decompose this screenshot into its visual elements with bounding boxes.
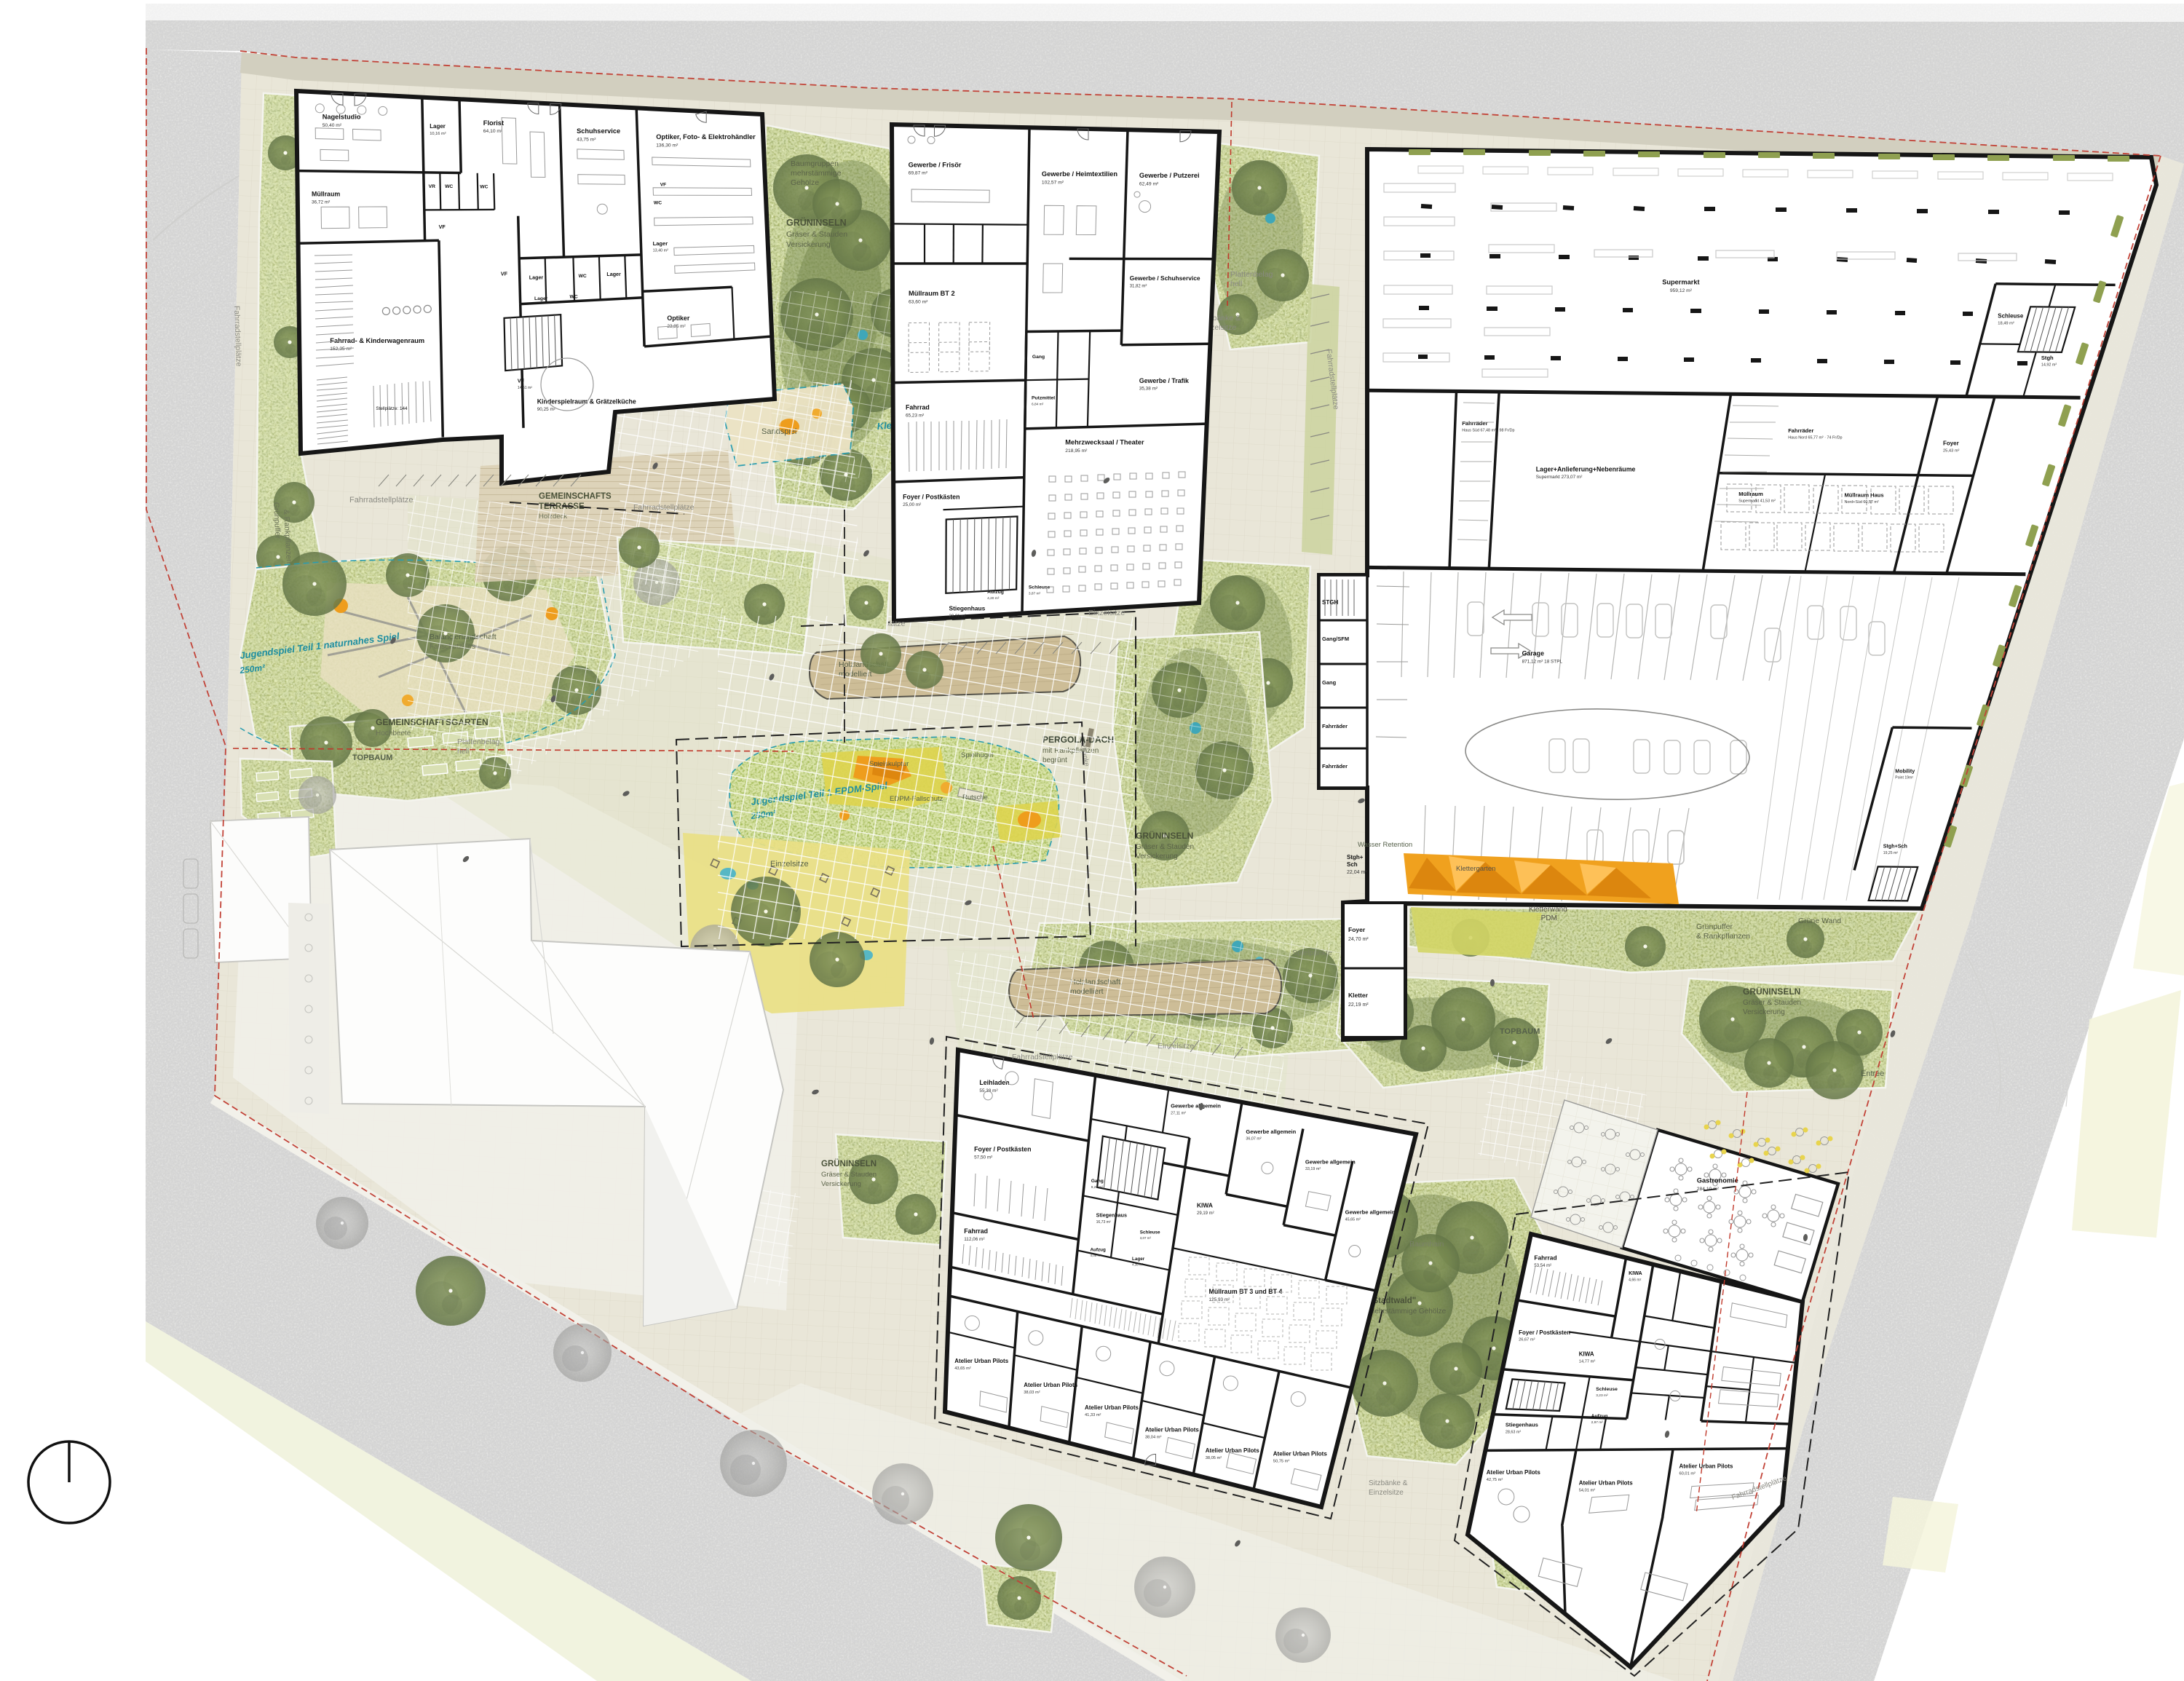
svg-text:Kletterwand: Kletterwand bbox=[1529, 906, 1567, 914]
svg-text:45,65 m²: 45,65 m² bbox=[1345, 1217, 1361, 1222]
svg-text:Fahrrad: Fahrrad bbox=[906, 404, 930, 411]
svg-text:31,82 m²: 31,82 m² bbox=[1130, 285, 1147, 289]
svg-text:VF: VF bbox=[439, 224, 446, 230]
svg-text:GRÜNINSELN: GRÜNINSELN bbox=[786, 217, 847, 228]
svg-text:VR: VR bbox=[429, 184, 435, 189]
svg-text:Fahrradstellplätze: Fahrradstellplätze bbox=[1012, 1053, 1073, 1061]
svg-text:871,12 m² 18 STPL: 871,12 m² 18 STPL bbox=[1522, 660, 1563, 665]
svg-text:112,06 m²: 112,06 m² bbox=[964, 1237, 984, 1242]
svg-text:102,57 m²: 102,57 m² bbox=[1042, 180, 1064, 185]
svg-text:Fahrräder: Fahrräder bbox=[1462, 420, 1487, 427]
svg-text:Atelier Urban Pilots: Atelier Urban Pilots bbox=[1085, 1404, 1139, 1411]
svg-text:42,75 m²: 42,75 m² bbox=[1487, 1478, 1503, 1482]
svg-text:50,75 m²: 50,75 m² bbox=[1273, 1459, 1290, 1463]
svg-text:Fahrrad: Fahrrad bbox=[964, 1227, 988, 1235]
svg-text:Stgh+: Stgh+ bbox=[1347, 854, 1364, 861]
svg-text:Gang: Gang bbox=[1322, 679, 1337, 686]
svg-text:36,72 m²: 36,72 m² bbox=[312, 199, 330, 205]
svg-text:36,07 m²: 36,07 m² bbox=[1246, 1136, 1261, 1141]
svg-text:Grüne Wand: Grüne Wand bbox=[1798, 917, 1841, 925]
svg-text:Schleuse: Schleuse bbox=[1596, 1387, 1618, 1392]
svg-text:14,77 m²: 14,77 m² bbox=[1579, 1360, 1596, 1364]
svg-text:50,40 m²: 50,40 m² bbox=[323, 123, 342, 128]
svg-text:54,01 m²: 54,01 m² bbox=[1579, 1488, 1596, 1492]
svg-text:64,10 m²: 64,10 m² bbox=[483, 129, 503, 134]
svg-text:WC: WC bbox=[445, 184, 453, 189]
svg-text:Schuhservice: Schuhservice bbox=[577, 127, 620, 135]
svg-text:25,43 m²: 25,43 m² bbox=[1943, 449, 1960, 454]
svg-text:Einzelsitze: Einzelsitze bbox=[1088, 609, 1125, 617]
svg-text:Foyer: Foyer bbox=[1943, 440, 1959, 447]
svg-text:Optiker: Optiker bbox=[667, 315, 689, 322]
svg-text:Stgh+Sch: Stgh+Sch bbox=[1883, 844, 1907, 850]
svg-text:Foyer / Postkästen: Foyer / Postkästen bbox=[974, 1146, 1031, 1153]
svg-text:Supermarkt 273,07 m²: Supermarkt 273,07 m² bbox=[1536, 475, 1583, 480]
svg-text:Aufzug: Aufzug bbox=[987, 590, 1004, 595]
svg-text:GRÜNINSELN: GRÜNINSELN bbox=[821, 1159, 877, 1168]
svg-text:Aufzug: Aufzug bbox=[1591, 1414, 1608, 1419]
svg-text:WC: WC bbox=[654, 201, 662, 206]
svg-text:Kletter: Kletter bbox=[1348, 992, 1369, 999]
svg-text:Mehrzwecksaal / Theater: Mehrzwecksaal / Theater bbox=[1065, 439, 1144, 446]
svg-text:2,97 m²: 2,97 m² bbox=[1591, 1420, 1604, 1425]
svg-text:Gang: Gang bbox=[1091, 1179, 1104, 1184]
svg-text:Atelier Urban Pilots: Atelier Urban Pilots bbox=[1487, 1469, 1541, 1476]
svg-text:hell: hell bbox=[1230, 280, 1242, 288]
svg-text:Fahrradstellplätze: Fahrradstellplätze bbox=[349, 496, 413, 505]
svg-text:Gehölze: Gehölze bbox=[791, 178, 819, 187]
svg-text:Müllraum Haus: Müllraum Haus bbox=[1845, 492, 1884, 499]
svg-text:14,51 m²: 14,51 m² bbox=[518, 386, 532, 390]
svg-text:90,25 m²: 90,25 m² bbox=[537, 407, 555, 412]
svg-text:Garage: Garage bbox=[1522, 650, 1544, 657]
svg-text:3,23 m²: 3,23 m² bbox=[1596, 1393, 1608, 1398]
svg-text:Putzmittel: Putzmittel bbox=[1032, 396, 1055, 401]
svg-text:Gewerbe / Heimtextilien: Gewerbe / Heimtextilien bbox=[1042, 170, 1118, 178]
svg-text:959,12 m²: 959,12 m² bbox=[1670, 288, 1693, 293]
svg-text:Lager+Anlieferung+Nebenräume: Lager+Anlieferung+Nebenräume bbox=[1536, 465, 1636, 472]
svg-text:Optiker, Foto- & Elektrohändle: Optiker, Foto- & Elektrohändler bbox=[656, 133, 756, 141]
svg-text:28,63 m²: 28,63 m² bbox=[1506, 1430, 1521, 1434]
svg-text:29,91 m²: 29,91 m² bbox=[949, 614, 967, 619]
svg-text:Haus Süd 67,48 m² · 98 Fr/Dp: Haus Süd 67,48 m² · 98 Fr/Dp bbox=[1462, 429, 1514, 433]
svg-text:Lager: Lager bbox=[430, 123, 446, 130]
svg-text:Entrée: Entrée bbox=[1861, 1069, 1884, 1078]
svg-text:GRÜNINSELN: GRÜNINSELN bbox=[1136, 830, 1193, 841]
svg-text:3,87 m²: 3,87 m² bbox=[1029, 591, 1041, 596]
svg-text:Baumhain: Baumhain bbox=[1409, 1240, 1444, 1249]
svg-text:Gewerbe / Schuhservice: Gewerbe / Schuhservice bbox=[1130, 274, 1200, 282]
svg-text:TOPBAUM: TOPBAUM bbox=[352, 754, 392, 762]
svg-text:Nagelstudio: Nagelstudio bbox=[323, 114, 361, 121]
svg-text:& Rankpflanzen: & Rankpflanzen bbox=[1696, 932, 1750, 941]
svg-text:Versickerung: Versickerung bbox=[1136, 853, 1178, 861]
svg-text:Leihladen: Leihladen bbox=[979, 1079, 1009, 1086]
svg-text:Gräser & Stauden: Gräser & Stauden bbox=[1136, 843, 1194, 851]
svg-text:Fahrräder: Fahrräder bbox=[1322, 763, 1348, 770]
svg-text:3,07 m²: 3,07 m² bbox=[1140, 1236, 1152, 1240]
svg-text:GEMEINSCHAFTS: GEMEINSCHAFTS bbox=[539, 492, 612, 501]
svg-text:63,60 m²: 63,60 m² bbox=[909, 299, 928, 304]
svg-text:Atelier Urban Pilots: Atelier Urban Pilots bbox=[1579, 1479, 1634, 1486]
svg-text:Schleuse: Schleuse bbox=[1140, 1230, 1160, 1235]
svg-text:Lager: Lager bbox=[1132, 1257, 1145, 1262]
svg-text:13,40 m²: 13,40 m² bbox=[653, 249, 668, 253]
svg-text:Plattenbelag: Plattenbelag bbox=[1230, 270, 1273, 279]
svg-text:Aufzug: Aufzug bbox=[1091, 1248, 1106, 1253]
svg-text:41,33 m²: 41,33 m² bbox=[1085, 1413, 1101, 1417]
svg-text:GRÜNINSELN: GRÜNINSELN bbox=[1743, 986, 1800, 997]
svg-text:22,04 m²: 22,04 m² bbox=[1347, 870, 1367, 875]
svg-text:14,92 m²: 14,92 m² bbox=[2041, 363, 2057, 368]
svg-text:218,95 m²: 218,95 m² bbox=[1065, 448, 1088, 454]
svg-text:Lager: Lager bbox=[653, 240, 668, 247]
svg-text:Müllraum BT 2: Müllraum BT 2 bbox=[909, 290, 955, 297]
svg-text:Gräser & Stauden: Gräser & Stauden bbox=[1743, 999, 1801, 1007]
svg-text:Sch: Sch bbox=[1347, 861, 1358, 868]
svg-text:VF: VF bbox=[501, 271, 508, 277]
svg-text:9,29 m²: 9,29 m² bbox=[1091, 1185, 1104, 1190]
svg-text:Gräser & Stauden: Gräser & Stauden bbox=[786, 230, 847, 239]
svg-text:57,50 m²: 57,50 m² bbox=[974, 1155, 992, 1160]
svg-text:Fahrräder: Fahrräder bbox=[1788, 427, 1813, 434]
svg-text:Lager: Lager bbox=[606, 272, 621, 277]
svg-text:Gewerbe allgemein: Gewerbe allgemein bbox=[1171, 1103, 1221, 1110]
svg-text:KIWA: KIWA bbox=[1197, 1202, 1213, 1209]
svg-text:26,67 m²: 26,67 m² bbox=[1519, 1338, 1535, 1342]
svg-text:4,08 m²: 4,08 m² bbox=[1091, 1254, 1102, 1257]
svg-text:Versickerung: Versickerung bbox=[1743, 1008, 1785, 1016]
svg-text:Foyer / Postkästen: Foyer / Postkästen bbox=[1519, 1329, 1570, 1336]
svg-text:53,54 m²: 53,54 m² bbox=[1534, 1264, 1551, 1268]
svg-text:4,36 m²: 4,36 m² bbox=[1132, 1262, 1144, 1266]
svg-text:Müllraum: Müllraum bbox=[312, 190, 340, 197]
svg-text:62,49 m²: 62,49 m² bbox=[1139, 181, 1159, 186]
svg-text:60,01 m²: 60,01 m² bbox=[1679, 1472, 1696, 1476]
svg-text:Versickerung: Versickerung bbox=[821, 1180, 861, 1188]
svg-text:Stiegenhaus: Stiegenhaus bbox=[1096, 1213, 1127, 1219]
svg-text:Stiegenhaus: Stiegenhaus bbox=[949, 604, 986, 612]
svg-text:Einzelsitze: Einzelsitze bbox=[1369, 1489, 1404, 1497]
svg-text:35,38 m²: 35,38 m² bbox=[1139, 387, 1158, 392]
svg-text:Supermarkt 41,53 m²: Supermarkt 41,53 m² bbox=[1738, 499, 1776, 504]
svg-text:Gräser & Stauden: Gräser & Stauden bbox=[821, 1171, 877, 1179]
svg-text:55,38 m²: 55,38 m² bbox=[979, 1088, 997, 1093]
svg-text:10,16 m²: 10,16 m² bbox=[430, 132, 446, 136]
svg-text:VF: VF bbox=[518, 379, 525, 384]
svg-text:69,87 m²: 69,87 m² bbox=[909, 171, 928, 176]
svg-text:Gastronomie: Gastronomie bbox=[1697, 1177, 1738, 1184]
svg-text:Einzelsitze: Einzelsitze bbox=[1158, 1042, 1194, 1051]
svg-text:24,70 m²: 24,70 m² bbox=[1348, 937, 1369, 942]
svg-text:136,30 m²: 136,30 m² bbox=[656, 143, 678, 148]
svg-text:Gewerbe allgemein: Gewerbe allgemein bbox=[1345, 1209, 1396, 1216]
svg-text:Atelier Urban Pilots: Atelier Urban Pilots bbox=[1206, 1447, 1260, 1454]
svg-text:Fahrrad: Fahrrad bbox=[1534, 1254, 1556, 1262]
svg-text:27,11 m²: 27,11 m² bbox=[1171, 1111, 1186, 1115]
svg-text:22,19 m²: 22,19 m² bbox=[1348, 1002, 1369, 1008]
svg-text:Gang/SFM: Gang/SFM bbox=[1322, 636, 1349, 642]
svg-text:Haus Nord 65,77 m² · 74 Fr/Dp: Haus Nord 65,77 m² · 74 Fr/Dp bbox=[1788, 435, 1842, 440]
svg-text:STGH: STGH bbox=[1322, 599, 1338, 606]
svg-text:Atelier Urban Pilots: Atelier Urban Pilots bbox=[1145, 1427, 1200, 1433]
svg-text:Atelier Urban Pilots: Atelier Urban Pilots bbox=[1679, 1463, 1734, 1470]
svg-text:Sitzbänke &: Sitzbänke & bbox=[1369, 1479, 1408, 1487]
svg-text:WC: WC bbox=[570, 295, 578, 300]
svg-text:Gewerbe / Putzerei: Gewerbe / Putzerei bbox=[1139, 172, 1200, 179]
svg-text:Stgh: Stgh bbox=[2041, 355, 2054, 361]
svg-text:Lager: Lager bbox=[529, 275, 544, 281]
svg-text:29,19 m²: 29,19 m² bbox=[1197, 1211, 1214, 1216]
svg-text:Atelier Urban Pilots: Atelier Urban Pilots bbox=[1273, 1450, 1328, 1457]
svg-text:Grünpuffer: Grünpuffer bbox=[1696, 922, 1733, 931]
svg-text:Gewerbe / Trafik: Gewerbe / Trafik bbox=[1139, 377, 1189, 384]
svg-text:Gewerbe / Frisör: Gewerbe / Frisör bbox=[909, 161, 962, 168]
svg-text:Florist: Florist bbox=[483, 119, 504, 127]
svg-text:Versickerung: Versickerung bbox=[786, 240, 831, 249]
svg-text:33,19 m²: 33,19 m² bbox=[1305, 1167, 1321, 1171]
svg-text:Baumgruppen: Baumgruppen bbox=[791, 159, 839, 168]
svg-text:Mobility: Mobility bbox=[1895, 768, 1915, 774]
svg-text:18,49 m²: 18,49 m² bbox=[1998, 321, 2014, 325]
svg-text:mehrstämmige: mehrstämmige bbox=[791, 169, 842, 178]
svg-text:KIWA: KIWA bbox=[1629, 1270, 1642, 1276]
svg-text:Atelier Urban Pilots: Atelier Urban Pilots bbox=[1024, 1382, 1078, 1388]
svg-text:mehrstämmige Gehölze: mehrstämmige Gehölze bbox=[1369, 1308, 1447, 1316]
svg-text:25,00 m²: 25,00 m² bbox=[903, 502, 921, 507]
svg-text:WC: WC bbox=[579, 274, 587, 279]
svg-text:Klettergarten: Klettergarten bbox=[1456, 865, 1495, 873]
svg-text:Atelier Urban Pilots: Atelier Urban Pilots bbox=[954, 1358, 1009, 1364]
svg-text:Fahrradstellplätze: Fahrradstellplätze bbox=[633, 503, 695, 512]
svg-text:WC: WC bbox=[480, 184, 488, 189]
svg-text:6,84 m²: 6,84 m² bbox=[1032, 402, 1044, 406]
svg-text:43,75 m²: 43,75 m² bbox=[577, 138, 596, 143]
svg-text:4,66 m²: 4,66 m² bbox=[1629, 1278, 1642, 1282]
svg-text:Plattenbelag,: Plattenbelag, bbox=[457, 737, 502, 746]
svg-text:Gewerbe allgemein: Gewerbe allgemein bbox=[1305, 1159, 1356, 1166]
svg-text:Stellplätze: 144: Stellplätze: 144 bbox=[376, 406, 408, 411]
svg-text:Foyer: Foyer bbox=[1348, 926, 1366, 933]
svg-text:Hochbeete: Hochbeete bbox=[376, 729, 411, 737]
svg-text:38,05 m²: 38,05 m² bbox=[1206, 1456, 1222, 1460]
svg-text:19,25 m²: 19,25 m² bbox=[1883, 851, 1898, 855]
svg-text:Lager: Lager bbox=[534, 296, 548, 301]
svg-text:Stiegenhaus: Stiegenhaus bbox=[1506, 1422, 1538, 1428]
svg-text:VF: VF bbox=[660, 183, 667, 188]
svg-text:Supermarkt: Supermarkt bbox=[1662, 279, 1699, 286]
svg-text:125,93 m²: 125,93 m² bbox=[1209, 1297, 1230, 1302]
svg-text:TOPBAUM: TOPBAUM bbox=[1500, 1027, 1540, 1036]
svg-text:Foyer / Postkästen: Foyer / Postkästen bbox=[903, 493, 960, 500]
svg-text:38,04 m²: 38,04 m² bbox=[1145, 1436, 1162, 1440]
svg-text:Fahrräder: Fahrräder bbox=[1322, 723, 1348, 729]
svg-text:16,73 m²: 16,73 m² bbox=[1096, 1220, 1111, 1225]
svg-text:Schleuse: Schleuse bbox=[1998, 312, 2024, 319]
svg-text:4,20 m²: 4,20 m² bbox=[987, 596, 1000, 601]
svg-text:43,65 m²: 43,65 m² bbox=[954, 1366, 971, 1371]
svg-text:Point 19m²: Point 19m² bbox=[1895, 775, 1913, 780]
svg-text:Gang: Gang bbox=[1032, 355, 1045, 360]
svg-text:65,23 m²: 65,23 m² bbox=[906, 414, 924, 419]
svg-text:Nord+Süd 60,57 m²: Nord+Süd 60,57 m² bbox=[1845, 500, 1879, 505]
svg-text:Gewerbe allgemein: Gewerbe allgemein bbox=[1246, 1128, 1296, 1135]
svg-text:KIWA: KIWA bbox=[1579, 1351, 1594, 1358]
svg-text:38,03 m²: 38,03 m² bbox=[1024, 1391, 1040, 1395]
svg-text:Müllraum: Müllraum bbox=[1738, 491, 1763, 497]
svg-text:Wasser Retention: Wasser Retention bbox=[1358, 841, 1412, 849]
svg-text:hell: hell bbox=[457, 747, 469, 756]
